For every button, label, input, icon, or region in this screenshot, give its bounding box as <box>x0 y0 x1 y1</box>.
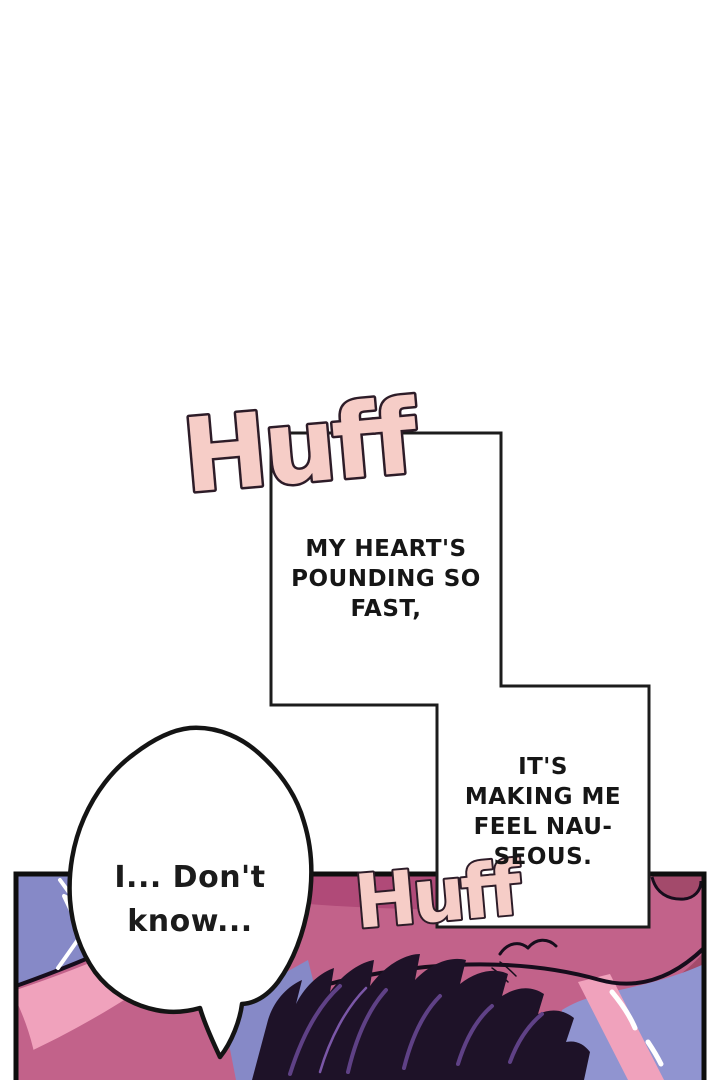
caption-line: MY HEART'S <box>271 534 501 564</box>
caption-line: MAKING ME <box>437 782 649 812</box>
speech-bubble-text: I... Don't know... <box>85 856 295 944</box>
speech-line: know... <box>85 900 295 944</box>
caption-line: IT'S <box>437 752 649 782</box>
caption-line: FAST, <box>271 594 501 624</box>
comic-page: Huff Huff MY HEART'S POUNDING SO FAST, I… <box>0 0 720 1080</box>
caption-box1-text: MY HEART'S POUNDING SO FAST, <box>271 534 501 624</box>
caption-line: POUNDING SO <box>271 564 501 594</box>
speech-line: I... Don't <box>85 856 295 900</box>
caption-box2-text: IT'S MAKING ME FEEL NAU- SEOUS. <box>437 752 649 872</box>
caption-line: FEEL NAU- <box>437 812 649 842</box>
caption-line: SEOUS. <box>437 842 649 872</box>
sfx-huff-top: Huff <box>178 378 424 517</box>
